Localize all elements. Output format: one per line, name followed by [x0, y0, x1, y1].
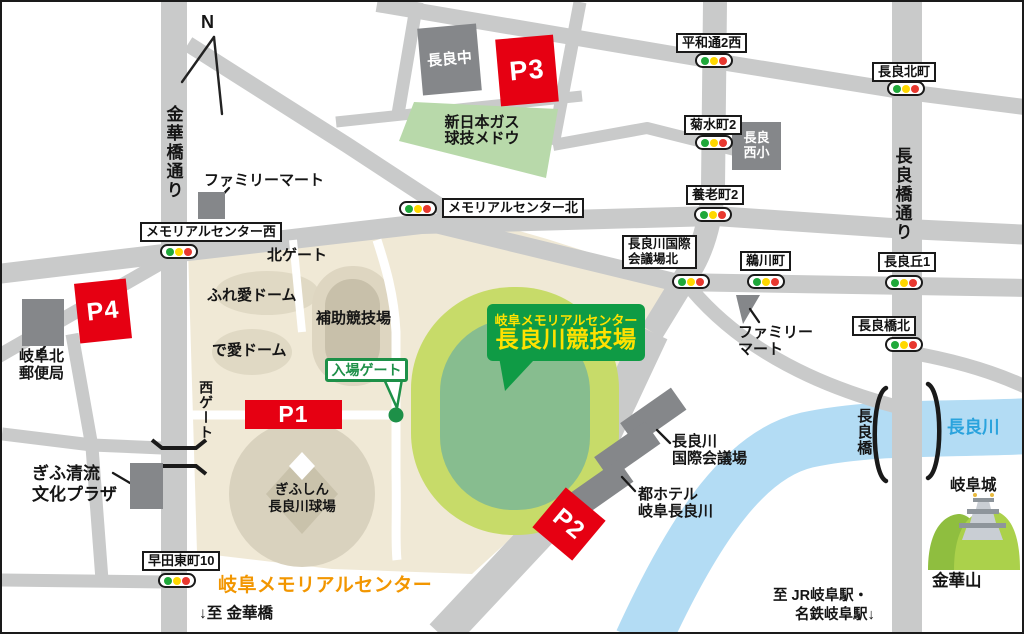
gifu-castle-label: 岐阜城 [950, 477, 997, 495]
nagara-jhs-building: 長良中 [417, 24, 482, 96]
entrance-gate-callout: 入場ゲート [325, 358, 408, 382]
parking-p1-sign: P1 [245, 400, 342, 429]
conference-center-label-line2: 国際会議場 [672, 450, 747, 467]
familymart-east-label-line2: マート [738, 341, 813, 358]
north-gate-label: 北ゲート [267, 247, 327, 264]
signal-label-memorial-center-west: メモリアルセンター西 [140, 222, 282, 242]
post-office-label-line2: 郵便局 [19, 365, 64, 382]
post-office-building [22, 299, 64, 346]
signal-label-nagaraoka-1: 長良丘1 [878, 252, 936, 272]
road-label-kinkabashi-dori: 金華橋通り [163, 105, 183, 200]
traffic-light-icon [885, 275, 923, 290]
road-west-minor-h [2, 434, 162, 448]
route-map-canvas: N 金華橋通り 長良橋通り メモリアルセンター西 メモリアルセンター北 平和通2… [0, 0, 1024, 634]
signal-label-kikusuicho-2: 菊水町2 [684, 115, 742, 135]
post-office-label: 岐阜北 郵便局 [19, 348, 64, 383]
kinkazan-label: 金華山 [932, 572, 982, 591]
fureai-dome-label: ふれ愛ドーム [207, 287, 297, 304]
traffic-light-icon [885, 337, 923, 352]
signal-label-kokusai-kaigijo-kita-line1: 長良川国際 [628, 237, 691, 252]
seiryu-plaza-building [130, 463, 163, 509]
familymart-nw-label: ファミリーマート [204, 172, 324, 189]
signal-label-nagara-kitamachi: 長良北町 [872, 62, 936, 82]
baseball-stadium-label: ぎふしん 長良川球場 [257, 482, 347, 516]
gas-meadow-label: 新日本ガス 球技メドウ [427, 115, 537, 147]
traffic-light-icon [694, 207, 732, 222]
signal-label-kokusai-kaigijo-kita-line2: 会議場北 [628, 252, 691, 267]
traffic-light-icon [747, 274, 785, 289]
road-south-minor-h [2, 580, 167, 582]
conference-center-label-line1: 長良川 [672, 433, 747, 450]
road-minor-a [398, 2, 417, 114]
entrance-gate-dot [389, 408, 404, 423]
traffic-light-icon [399, 201, 437, 216]
signal-label-ukawacho: 鵜川町 [740, 251, 791, 271]
gas-meadow-label-line1: 新日本ガス [427, 115, 537, 131]
seiryu-plaza-label-line1: ぎふ清流 [32, 463, 117, 484]
nagara-jhs-label: 長良中 [419, 48, 479, 70]
hotel-label-line1: 都ホテル [638, 486, 713, 503]
stadium-sign-line1: 岐阜メモリアルセンター [495, 314, 638, 328]
traffic-light-icon [695, 135, 733, 150]
deai-dome-label: で愛ドーム [212, 342, 287, 359]
road-ne-bank-curve [907, 352, 1024, 387]
seiryu-plaza-label: ぎふ清流 文化プラザ [32, 463, 117, 506]
direction-to-kinkabashi: ↓至 金華橋 [199, 605, 273, 623]
stadium-callout-sign: 岐阜メモリアルセンター 長良川競技場 [487, 304, 645, 361]
conference-center-label: 長良川 国際会議場 [672, 433, 747, 468]
nagara-elementary-label-line2: 西小 [732, 146, 781, 161]
nagara-river-label: 長良川 [947, 417, 1000, 437]
signal-label-heiwadori-2-west: 平和通2西 [676, 33, 747, 53]
seiryu-plaza-label-line2: 文化プラザ [32, 484, 117, 505]
west-gate-label: 西ゲート [198, 380, 214, 440]
traffic-light-icon [887, 81, 925, 96]
familymart-east-label-line1: ファミリー [738, 324, 813, 341]
stadium-sign-line2: 長良川競技場 [496, 327, 637, 351]
campus-name-label: 岐阜メモリアルセンター [218, 575, 432, 597]
post-office-label-line1: 岐阜北 [19, 348, 64, 365]
road-west-minor-v [72, 334, 102, 580]
traffic-light-icon [672, 274, 710, 289]
hotel-label-line2: 岐阜長良川 [638, 503, 713, 520]
traffic-light-icon [695, 53, 733, 68]
signal-label-sodahigashimachi-10: 早田東町10 [142, 551, 220, 571]
signal-label-nagarabashi-kita: 長良橋北 [852, 316, 916, 336]
nagara-bridge-label: 長良橋 [855, 408, 872, 456]
parking-p3-sign: P3 [495, 35, 559, 107]
familymart-nw-building [198, 192, 225, 219]
direction-to-stations-line1: 至 JR岐阜駅・ [773, 588, 868, 605]
road-label-nagarabashi-dori: 長良橋通り [892, 147, 912, 242]
compass-n-label: N [201, 12, 214, 33]
hotel-label: 都ホテル 岐阜長良川 [638, 486, 713, 521]
parking-p4-sign: P4 [74, 278, 132, 343]
sub-stadium-label: 補助競技場 [316, 310, 391, 327]
traffic-light-icon [160, 244, 198, 259]
baseball-stadium-label-line1: ぎふしん [257, 482, 347, 499]
signal-label-yorocho-2: 養老町2 [686, 185, 744, 205]
direction-to-stations-line2: 名鉄岐阜駅↓ [795, 607, 875, 624]
familymart-east-label: ファミリー マート [738, 324, 813, 359]
baseball-stadium-label-line2: 長良川球場 [257, 499, 347, 516]
traffic-light-icon [158, 573, 196, 588]
road-minor-b [553, 2, 580, 145]
signal-label-memorial-center-north: メモリアルセンター北 [442, 198, 584, 218]
gas-meadow-label-line2: 球技メドウ [427, 131, 537, 147]
